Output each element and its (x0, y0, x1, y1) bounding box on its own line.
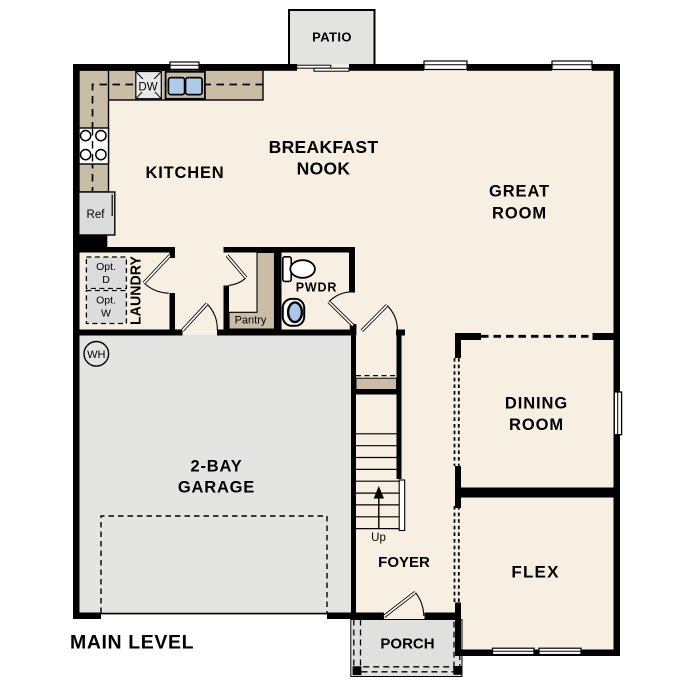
svg-text:Opt.: Opt. (96, 295, 116, 307)
svg-text:GARAGE: GARAGE (178, 479, 255, 497)
svg-text:D: D (102, 274, 110, 286)
svg-text:PORCH: PORCH (380, 636, 434, 653)
svg-text:2-BAY: 2-BAY (191, 458, 243, 476)
svg-text:DINING: DINING (505, 395, 568, 413)
svg-text:FOYER: FOYER (378, 554, 430, 571)
svg-text:BREAKFAST: BREAKFAST (269, 137, 379, 157)
svg-text:NOOK: NOOK (297, 159, 351, 179)
svg-text:W: W (101, 308, 111, 320)
svg-text:FLEX: FLEX (511, 563, 559, 582)
svg-text:Pantry: Pantry (235, 315, 267, 327)
svg-text:PWDR: PWDR (296, 280, 337, 294)
svg-text:GREAT: GREAT (489, 183, 550, 201)
svg-text:Up: Up (371, 532, 386, 544)
svg-text:LAUNDRY: LAUNDRY (128, 256, 144, 325)
svg-text:DW: DW (138, 81, 157, 93)
svg-text:PATIO: PATIO (312, 30, 352, 45)
svg-text:Opt.: Opt. (96, 261, 116, 273)
svg-text:ROOM: ROOM (509, 416, 564, 434)
svg-text:Ref: Ref (87, 209, 106, 221)
svg-text:WH: WH (87, 349, 105, 361)
svg-text:KITCHEN: KITCHEN (146, 164, 225, 182)
svg-text:ROOM: ROOM (492, 205, 547, 223)
svg-text:MAIN LEVEL: MAIN LEVEL (70, 632, 194, 654)
